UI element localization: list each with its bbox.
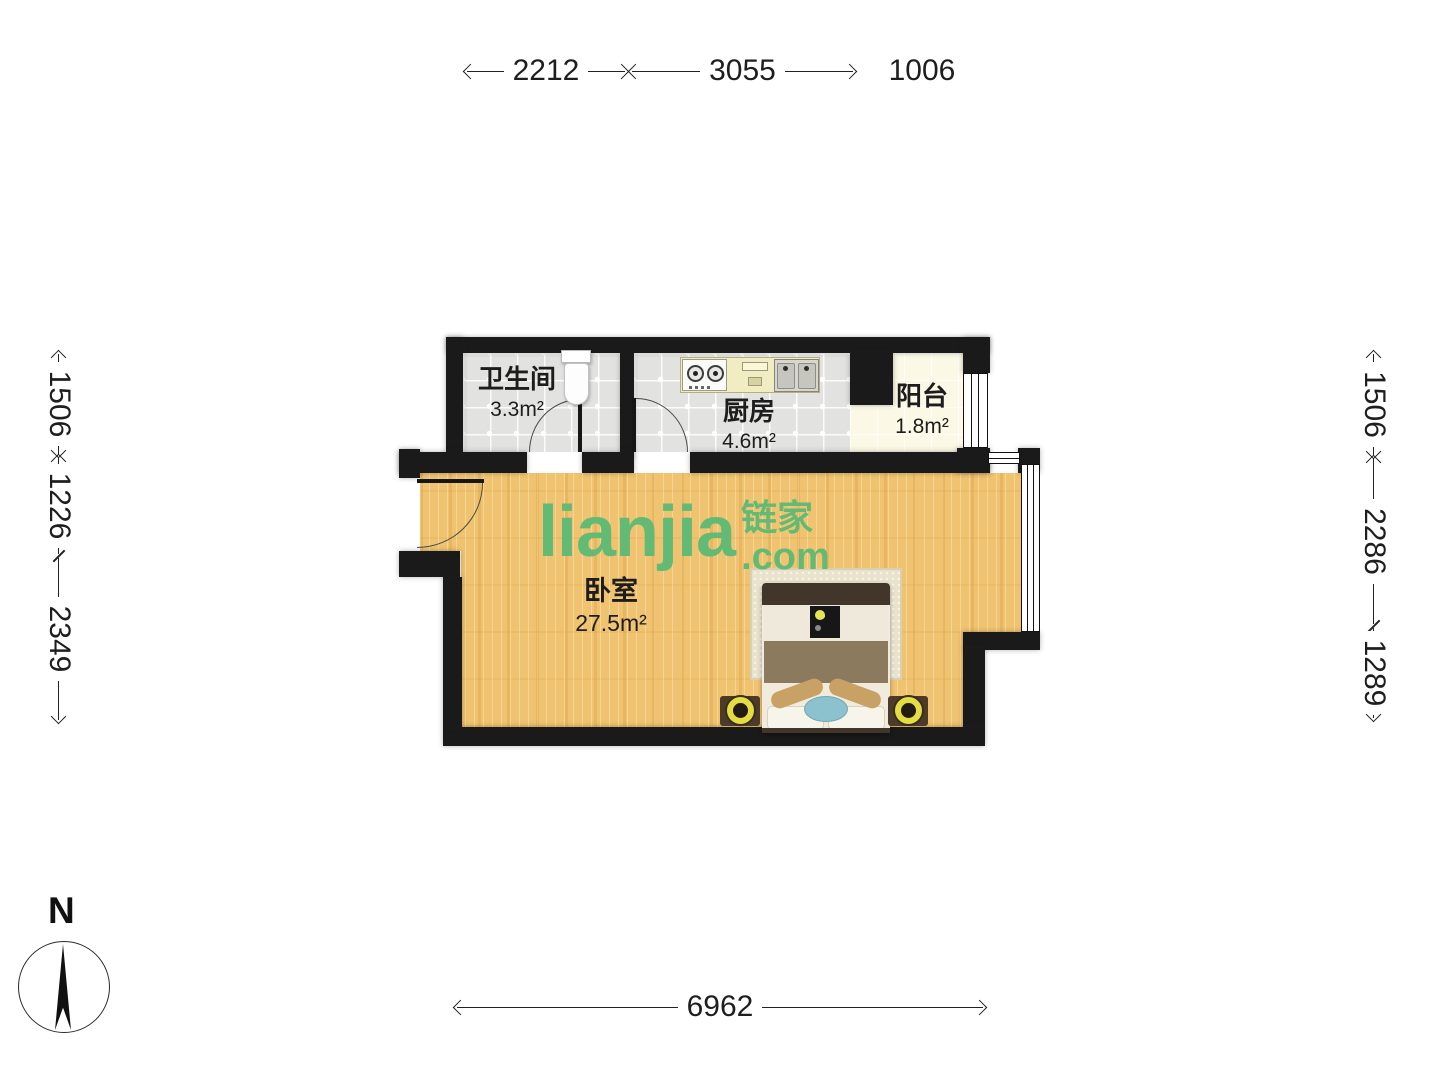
lamp-icon: [895, 697, 922, 724]
burner-icon: [707, 365, 724, 382]
dim-value: 2286: [1359, 499, 1389, 584]
dim-value: 3055: [700, 56, 785, 86]
bed-foot-band: [762, 583, 890, 605]
bed: [762, 583, 890, 733]
room-name: 卧室: [551, 576, 671, 607]
dim-value: 1006: [880, 56, 965, 86]
arrow-right-icon: [51, 709, 67, 725]
room-name: 厨房: [689, 397, 809, 427]
dim-top-3: 1006: [858, 54, 986, 88]
dim-top-2: 3055: [630, 54, 855, 88]
room-area: 3.3m²: [457, 398, 577, 422]
bedroom-label: 卧室 27.5m²: [551, 576, 671, 636]
floorplan-canvas: LIANJIA 链家 .com 卫生间 3.3m² 厨房 4.6m² 阳台 1.…: [0, 0, 1440, 1080]
arrow-left-icon: [463, 63, 479, 79]
stove-knobs: [689, 386, 713, 389]
wall-left-lower: [443, 577, 462, 727]
dim-left-2: 1226: [42, 456, 76, 558]
arrow-right-icon: [842, 63, 858, 79]
room-area: 27.5m²: [551, 610, 671, 636]
stove: [682, 359, 727, 391]
kitchen-label: 厨房 4.6m²: [689, 397, 809, 454]
arrow-right-icon: [972, 999, 988, 1015]
bed-quilt: [764, 641, 888, 683]
dim-value: 6962: [678, 992, 763, 1022]
dim-value: 1506: [1359, 362, 1389, 447]
dim-left-3: 2349: [42, 558, 76, 722]
wall-midspan-c: [690, 452, 990, 473]
arrow-left-icon: [1366, 455, 1382, 471]
wall-midspan-a: [399, 452, 527, 473]
room-area: 1.8m²: [862, 415, 982, 439]
dim-value: 1289: [1359, 631, 1389, 716]
wall-right-lower: [963, 648, 985, 727]
dim-right-2: 2286: [1357, 457, 1391, 628]
room-area: 4.6m²: [689, 430, 809, 454]
room-name: 阳台: [862, 382, 982, 412]
lianjia-cjk-text: 链家: [741, 500, 830, 536]
bay-side-window: [1021, 464, 1040, 632]
balcony-label: 阳台 1.8m²: [862, 382, 982, 439]
faucet-dot: [804, 366, 809, 371]
wall-left-step-corner: [399, 551, 460, 577]
bed-headboard: [762, 728, 890, 733]
dim-value: 2349: [44, 597, 74, 682]
dim-left-1: 1506: [42, 352, 76, 456]
wall-balcony-right-top: [963, 337, 990, 373]
bathroom-label: 卫生间 3.3m²: [457, 365, 577, 422]
kitchen-control-panel: [742, 362, 768, 371]
wall-midspan-b: [582, 452, 634, 473]
dim-bottom: 6962: [455, 990, 985, 1024]
bed-tray: [810, 606, 840, 638]
wall-bottom: [443, 727, 985, 746]
north-label: N: [48, 890, 75, 932]
bay-top-window: [988, 452, 1020, 464]
toilet-tank: [561, 350, 591, 363]
burner-icon: [687, 365, 704, 382]
dim-right-3: 1289: [1357, 628, 1391, 720]
wall-top: [446, 337, 990, 353]
dim-right-1: 1506: [1357, 352, 1391, 457]
lianjia-domain-text: .com: [741, 538, 830, 576]
faucet-dot: [783, 366, 788, 371]
tray-dot: [815, 625, 821, 631]
arrow-left-icon: [628, 63, 644, 79]
lamp-icon: [727, 697, 754, 724]
tray-flower-icon: [815, 610, 825, 620]
round-pillow: [804, 696, 848, 722]
dim-value: 1226: [44, 464, 74, 549]
lianjia-watermark: LIANJIA 链家 .com: [538, 498, 830, 576]
lianjia-logo-text: LIANJIA: [538, 498, 735, 566]
kitchen-control-grid: [748, 377, 762, 386]
sink-unit: [774, 359, 819, 392]
arrow-left-icon: [453, 999, 469, 1015]
dim-top-1: 2212: [465, 54, 627, 88]
room-name: 卫生间: [457, 365, 577, 395]
dim-value: 2212: [504, 56, 589, 86]
dim-value: 1506: [44, 362, 74, 447]
